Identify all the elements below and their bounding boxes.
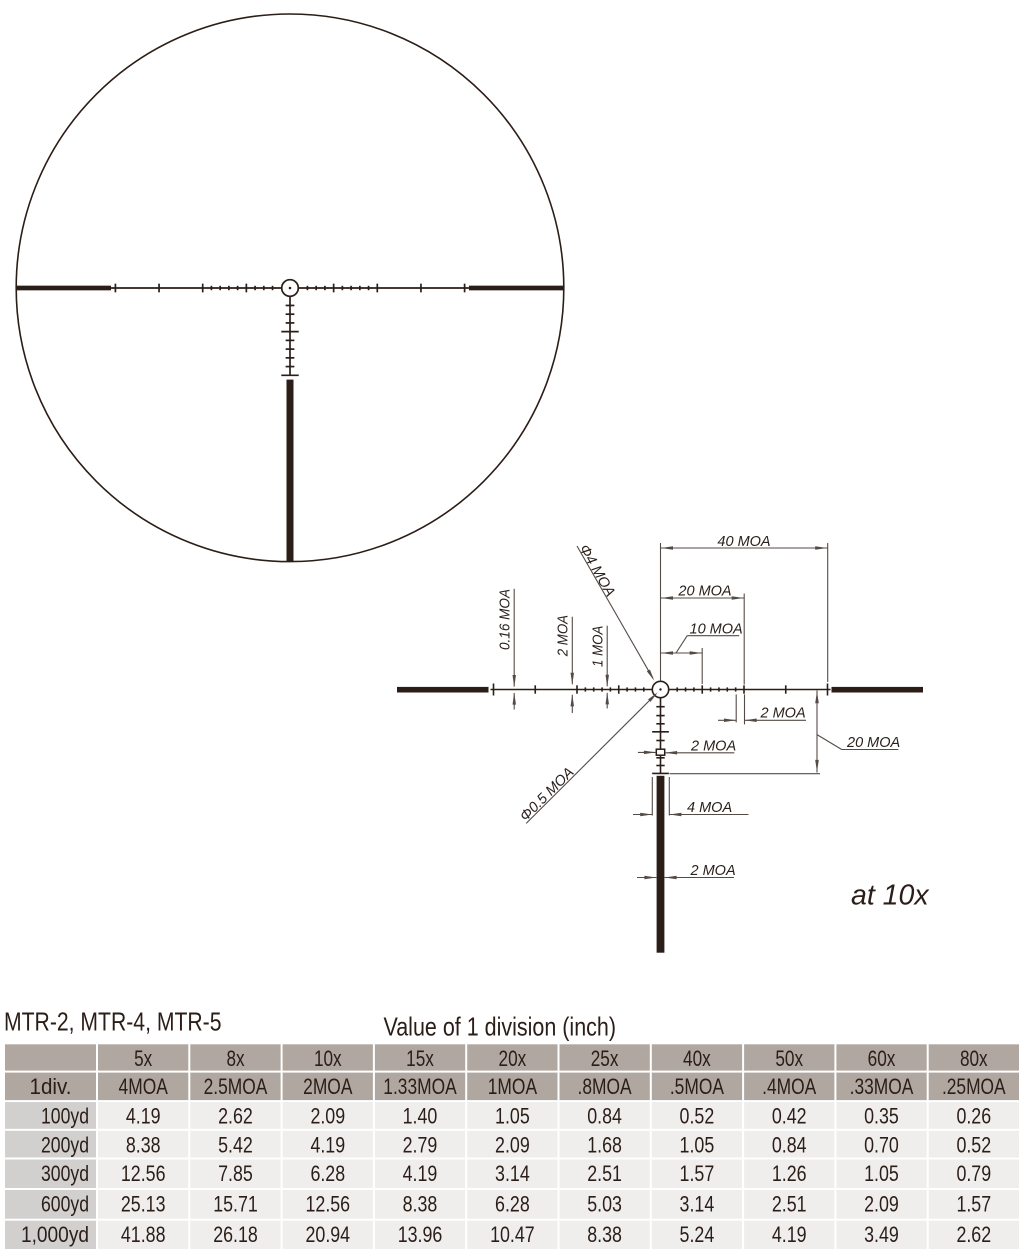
svg-text:2.51: 2.51: [587, 1161, 622, 1186]
svg-text:10x: 10x: [314, 1046, 342, 1071]
svg-text:13.96: 13.96: [398, 1222, 443, 1247]
svg-text:1.05: 1.05: [495, 1104, 530, 1129]
svg-text:1.05: 1.05: [864, 1161, 899, 1186]
svg-text:0.52: 0.52: [956, 1132, 991, 1157]
svg-text:4.19: 4.19: [772, 1222, 807, 1247]
svg-text:2.79: 2.79: [403, 1132, 438, 1157]
svg-text:2 MOA: 2 MOA: [760, 706, 806, 722]
svg-text:5.42: 5.42: [218, 1132, 253, 1157]
svg-text:7.85: 7.85: [218, 1161, 253, 1186]
svg-text:1MOA: 1MOA: [488, 1074, 538, 1099]
svg-text:8.38: 8.38: [403, 1192, 438, 1217]
svg-text:2.62: 2.62: [218, 1104, 253, 1129]
svg-text:1.57: 1.57: [680, 1161, 715, 1186]
svg-text:8.38: 8.38: [126, 1132, 161, 1157]
svg-text:20.94: 20.94: [306, 1222, 351, 1247]
svg-text:1.26: 1.26: [772, 1161, 807, 1186]
svg-text:2.09: 2.09: [495, 1132, 530, 1157]
svg-text:1.68: 1.68: [587, 1132, 622, 1157]
svg-text:2.09: 2.09: [864, 1192, 899, 1217]
svg-text:3.49: 3.49: [864, 1222, 899, 1247]
svg-text:1.33MOA: 1.33MOA: [383, 1074, 457, 1099]
svg-text:25x: 25x: [591, 1046, 619, 1071]
svg-text:20 MOA: 20 MOA: [846, 735, 900, 751]
svg-text:6.28: 6.28: [495, 1192, 530, 1217]
svg-text:26.18: 26.18: [213, 1222, 258, 1247]
svg-text:0.42: 0.42: [772, 1104, 807, 1129]
svg-text:4.19: 4.19: [403, 1161, 438, 1186]
svg-text:.25MOA: .25MOA: [942, 1074, 1006, 1099]
svg-text:4.19: 4.19: [126, 1104, 161, 1129]
svg-text:4 MOA: 4 MOA: [687, 800, 732, 816]
svg-text:0.70: 0.70: [864, 1132, 899, 1157]
svg-text:2.5MOA: 2.5MOA: [204, 1074, 268, 1099]
svg-text:Value of 1 division (inch): Value of 1 division (inch): [384, 1012, 617, 1042]
svg-text:2.62: 2.62: [956, 1222, 991, 1247]
svg-text:40x: 40x: [683, 1046, 711, 1071]
svg-text:1.57: 1.57: [956, 1192, 991, 1217]
svg-text:12.56: 12.56: [121, 1161, 166, 1186]
svg-text:40 MOA: 40 MOA: [717, 534, 770, 550]
svg-text:0.16 MOA: 0.16 MOA: [498, 589, 514, 650]
svg-text:.33MOA: .33MOA: [850, 1074, 914, 1099]
svg-text:5.24: 5.24: [680, 1222, 715, 1247]
svg-text:4MOA: 4MOA: [119, 1074, 169, 1099]
svg-text:25.13: 25.13: [121, 1192, 166, 1217]
svg-text:15.71: 15.71: [213, 1192, 258, 1217]
svg-text:300yd: 300yd: [41, 1161, 89, 1186]
svg-text:.5MOA: .5MOA: [670, 1074, 724, 1099]
svg-text:0.35: 0.35: [864, 1104, 899, 1129]
svg-text:0.79: 0.79: [956, 1161, 991, 1186]
svg-text:20x: 20x: [499, 1046, 527, 1071]
svg-text:50x: 50x: [775, 1046, 803, 1071]
svg-text:41.88: 41.88: [121, 1222, 166, 1247]
svg-text:12.56: 12.56: [306, 1192, 351, 1217]
svg-text:8x: 8x: [226, 1046, 244, 1071]
svg-text:0.52: 0.52: [680, 1104, 715, 1129]
svg-text:2.51: 2.51: [772, 1192, 807, 1217]
svg-text:4.19: 4.19: [310, 1132, 345, 1157]
svg-text:at 10x: at 10x: [851, 880, 930, 912]
svg-text:6.28: 6.28: [310, 1161, 345, 1186]
svg-text:8.38: 8.38: [587, 1222, 622, 1247]
svg-text:Φ0.5 MOA: Φ0.5 MOA: [517, 765, 577, 825]
svg-text:80x: 80x: [960, 1046, 988, 1071]
svg-text:2MOA: 2MOA: [303, 1074, 353, 1099]
svg-text:15x: 15x: [406, 1046, 434, 1071]
svg-text:2 MOA: 2 MOA: [556, 615, 572, 657]
svg-text:20 MOA: 20 MOA: [677, 584, 731, 600]
svg-text:10 MOA: 10 MOA: [690, 622, 743, 638]
svg-text:1.05: 1.05: [680, 1132, 715, 1157]
svg-text:0.84: 0.84: [587, 1104, 622, 1129]
svg-text:60x: 60x: [868, 1046, 896, 1071]
svg-text:2 MOA: 2 MOA: [690, 863, 736, 879]
svg-text:100yd: 100yd: [41, 1104, 89, 1129]
svg-text:1.40: 1.40: [403, 1104, 438, 1129]
svg-text:600yd: 600yd: [41, 1192, 89, 1217]
svg-text:0.84: 0.84: [772, 1132, 807, 1157]
svg-text:0.26: 0.26: [956, 1104, 991, 1129]
svg-text:.8MOA: .8MOA: [578, 1074, 632, 1099]
svg-text:3.14: 3.14: [680, 1192, 715, 1217]
svg-text:Φ4 MOA: Φ4 MOA: [576, 542, 618, 600]
svg-text:MTR-2, MTR-4, MTR-5: MTR-2, MTR-4, MTR-5: [4, 1006, 222, 1036]
svg-text:1,000yd: 1,000yd: [21, 1222, 89, 1247]
svg-text:2.09: 2.09: [310, 1104, 345, 1129]
svg-text:.4MOA: .4MOA: [762, 1074, 816, 1099]
svg-text:3.14: 3.14: [495, 1161, 530, 1186]
svg-text:200yd: 200yd: [41, 1132, 89, 1157]
svg-text:10.47: 10.47: [490, 1222, 535, 1247]
svg-text:1div.: 1div.: [30, 1074, 72, 1099]
svg-text:1 MOA: 1 MOA: [591, 626, 607, 667]
svg-text:5.03: 5.03: [587, 1192, 622, 1217]
svg-text:5x: 5x: [134, 1046, 152, 1071]
svg-text:2 MOA: 2 MOA: [690, 739, 736, 755]
